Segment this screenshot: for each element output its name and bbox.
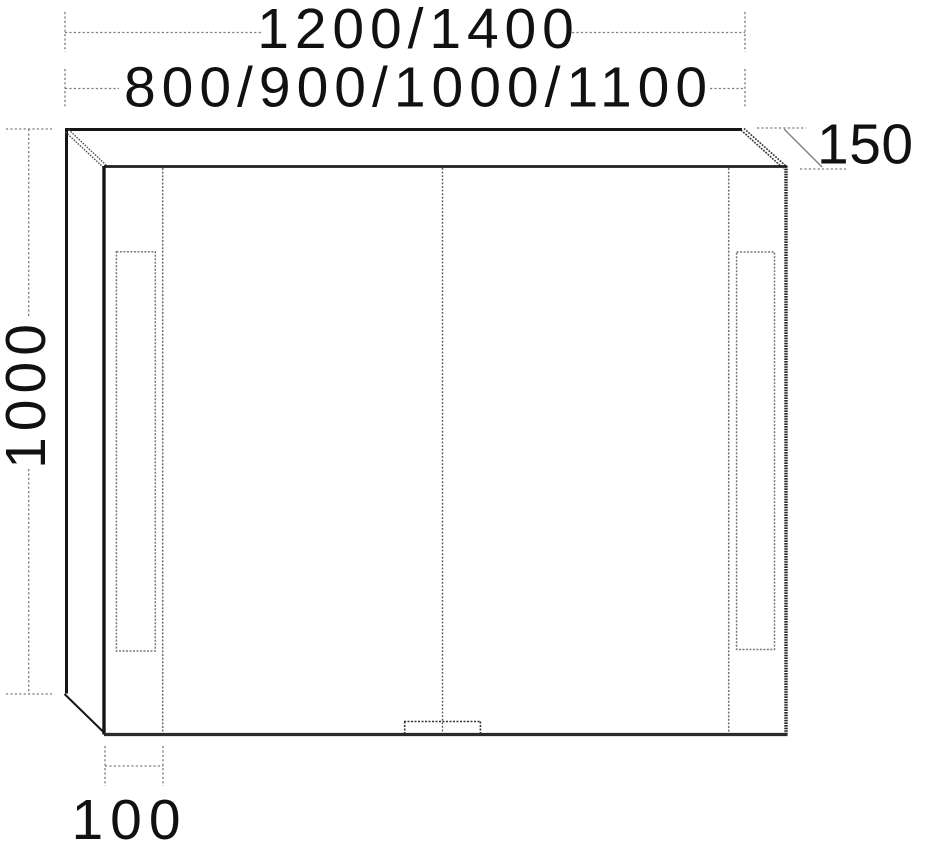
svg-text:1000: 1000 <box>0 318 58 469</box>
svg-text:150: 150 <box>817 113 914 177</box>
svg-text:100: 100 <box>71 788 187 852</box>
svg-text:800/900/1000/1100: 800/900/1000/1100 <box>124 56 713 120</box>
svg-text:1200/1400: 1200/1400 <box>257 0 580 61</box>
